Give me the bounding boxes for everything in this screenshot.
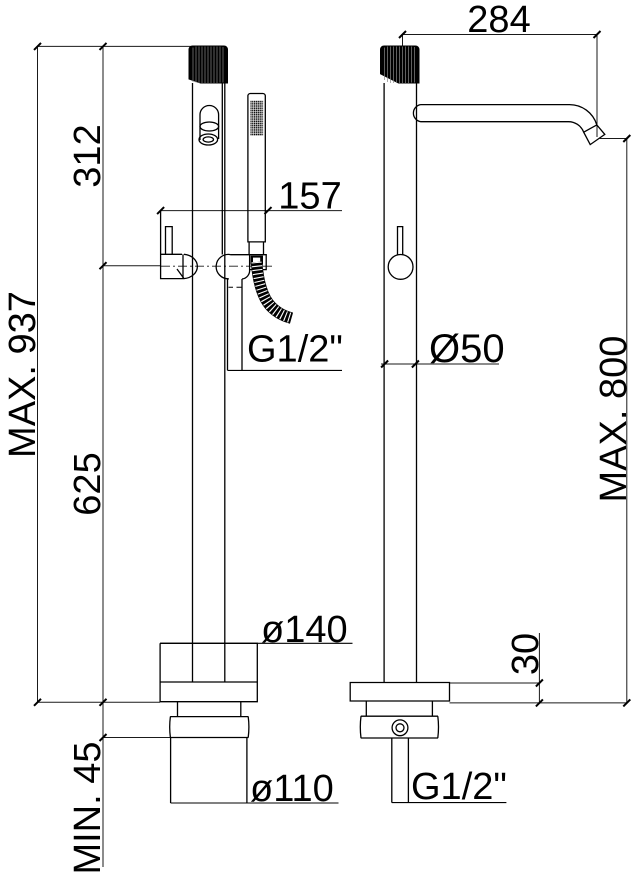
svg-text:ø110: ø110: [250, 768, 334, 810]
svg-text:312: 312: [67, 124, 109, 187]
svg-text:MIN. 45: MIN. 45: [67, 741, 109, 874]
svg-text:30: 30: [505, 633, 547, 675]
svg-text:MAX. 800: MAX. 800: [593, 336, 632, 503]
svg-text:G1/2": G1/2": [247, 329, 343, 371]
svg-text:157: 157: [278, 175, 341, 217]
svg-text:Ø50: Ø50: [429, 327, 505, 371]
svg-text:284: 284: [467, 0, 530, 41]
svg-text:G1/2": G1/2": [411, 766, 507, 808]
svg-text:625: 625: [67, 452, 109, 515]
svg-text:ø140: ø140: [261, 609, 348, 651]
svg-text:MAX. 937: MAX. 937: [2, 291, 44, 458]
